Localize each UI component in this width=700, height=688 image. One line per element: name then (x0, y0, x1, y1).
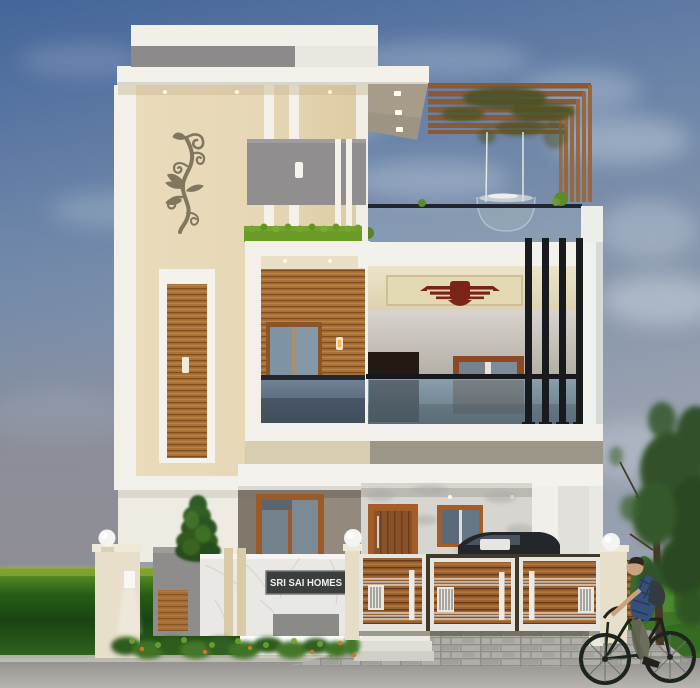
svg-text:SRI SAI HOMES: SRI SAI HOMES (270, 578, 342, 589)
